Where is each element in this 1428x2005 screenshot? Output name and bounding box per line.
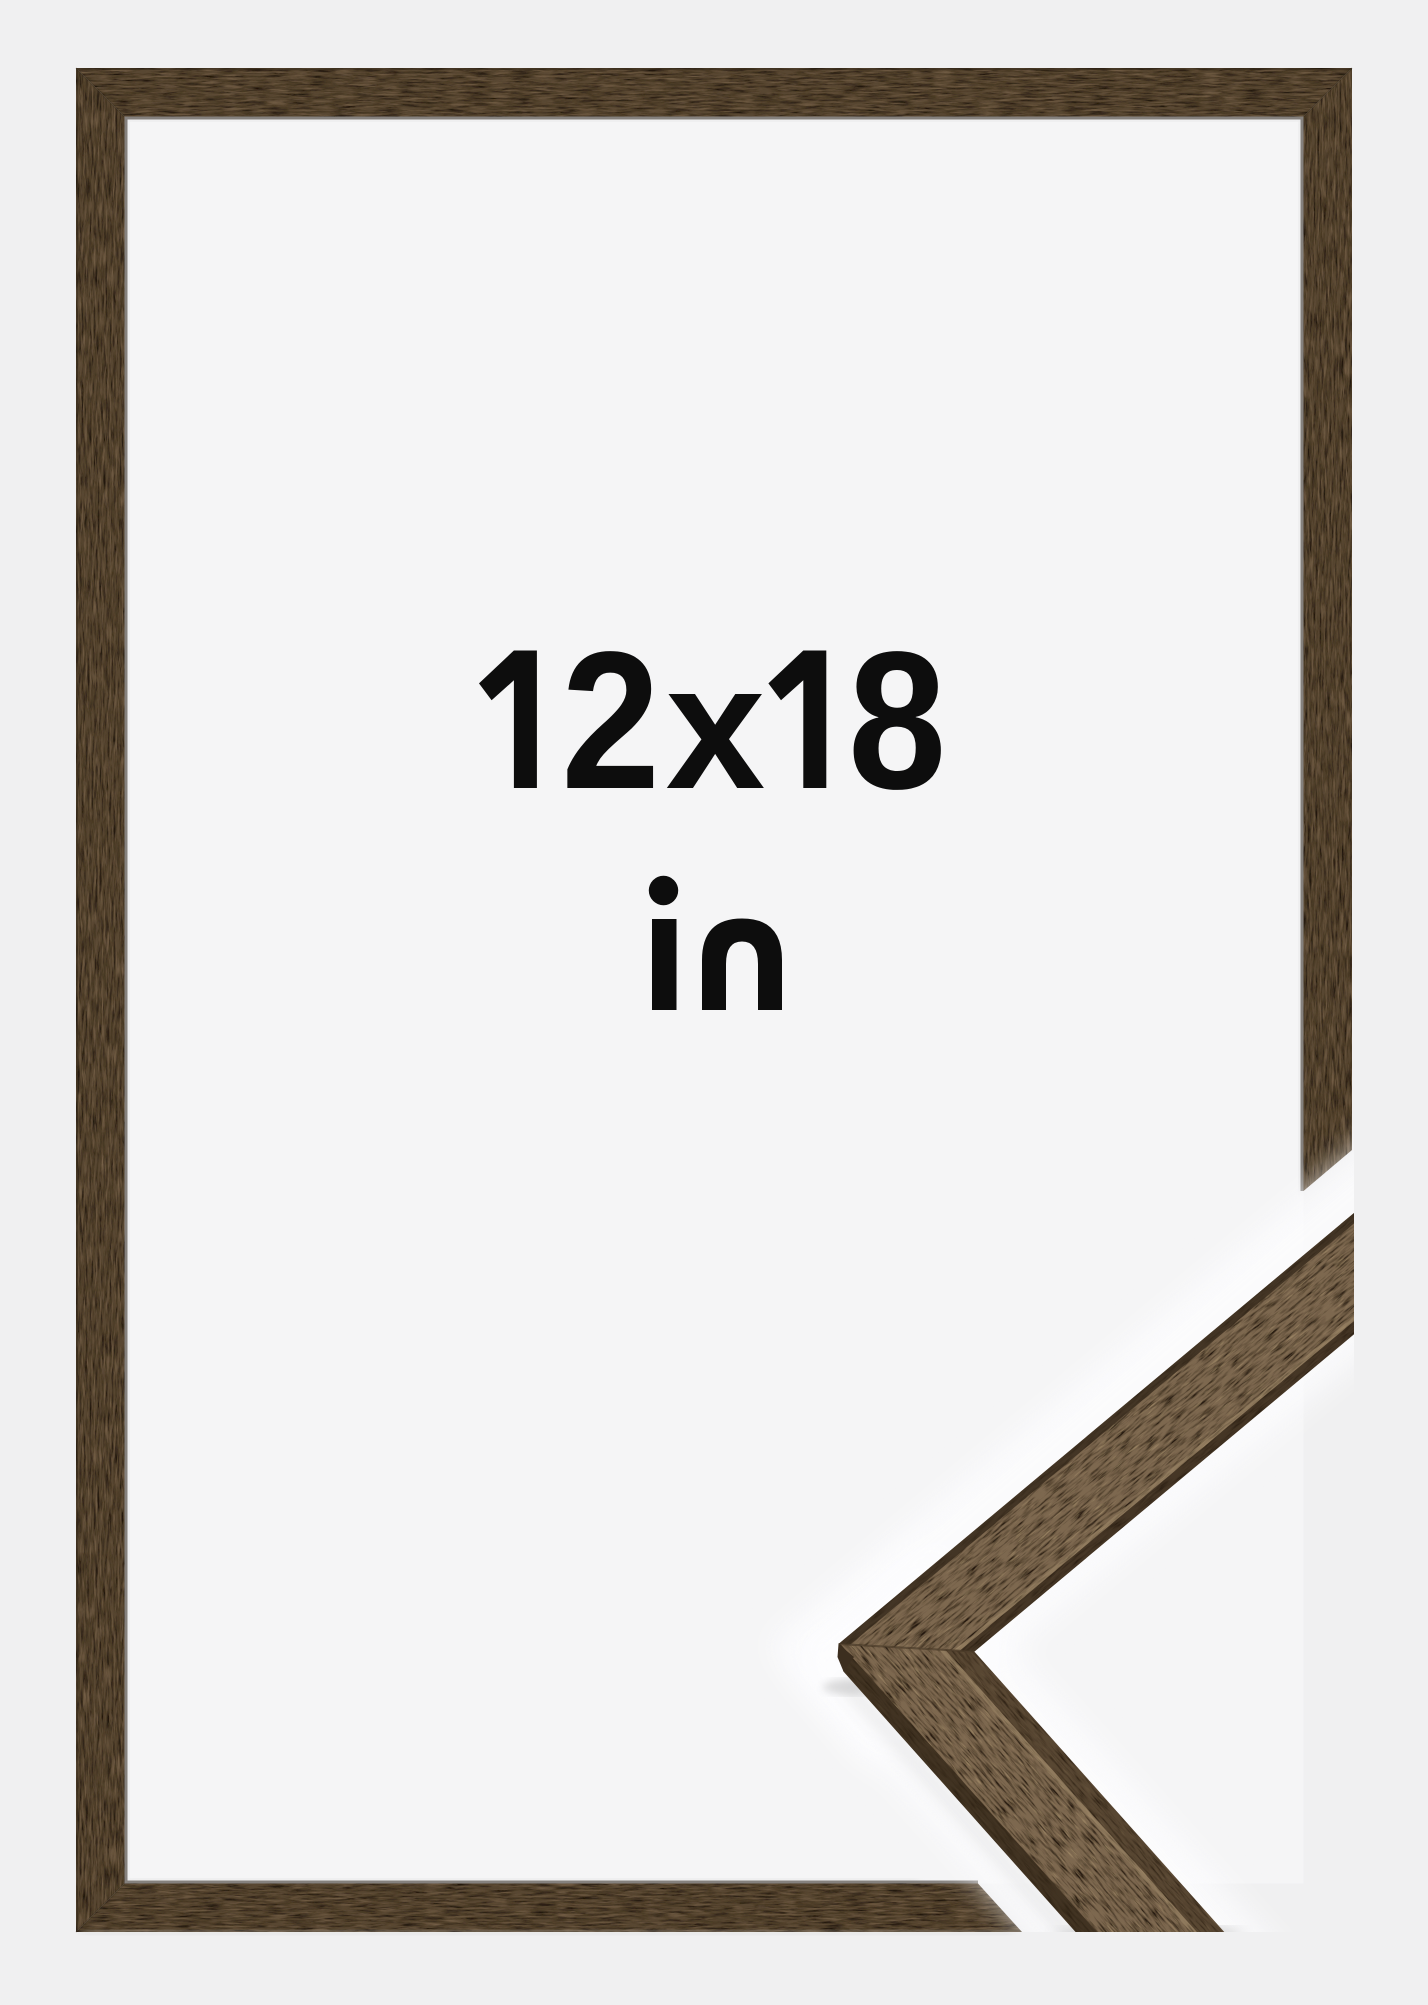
svg-text:8: 8 (848, 611, 946, 830)
svg-text:x: x (666, 627, 766, 826)
svg-text:2: 2 (561, 611, 660, 830)
